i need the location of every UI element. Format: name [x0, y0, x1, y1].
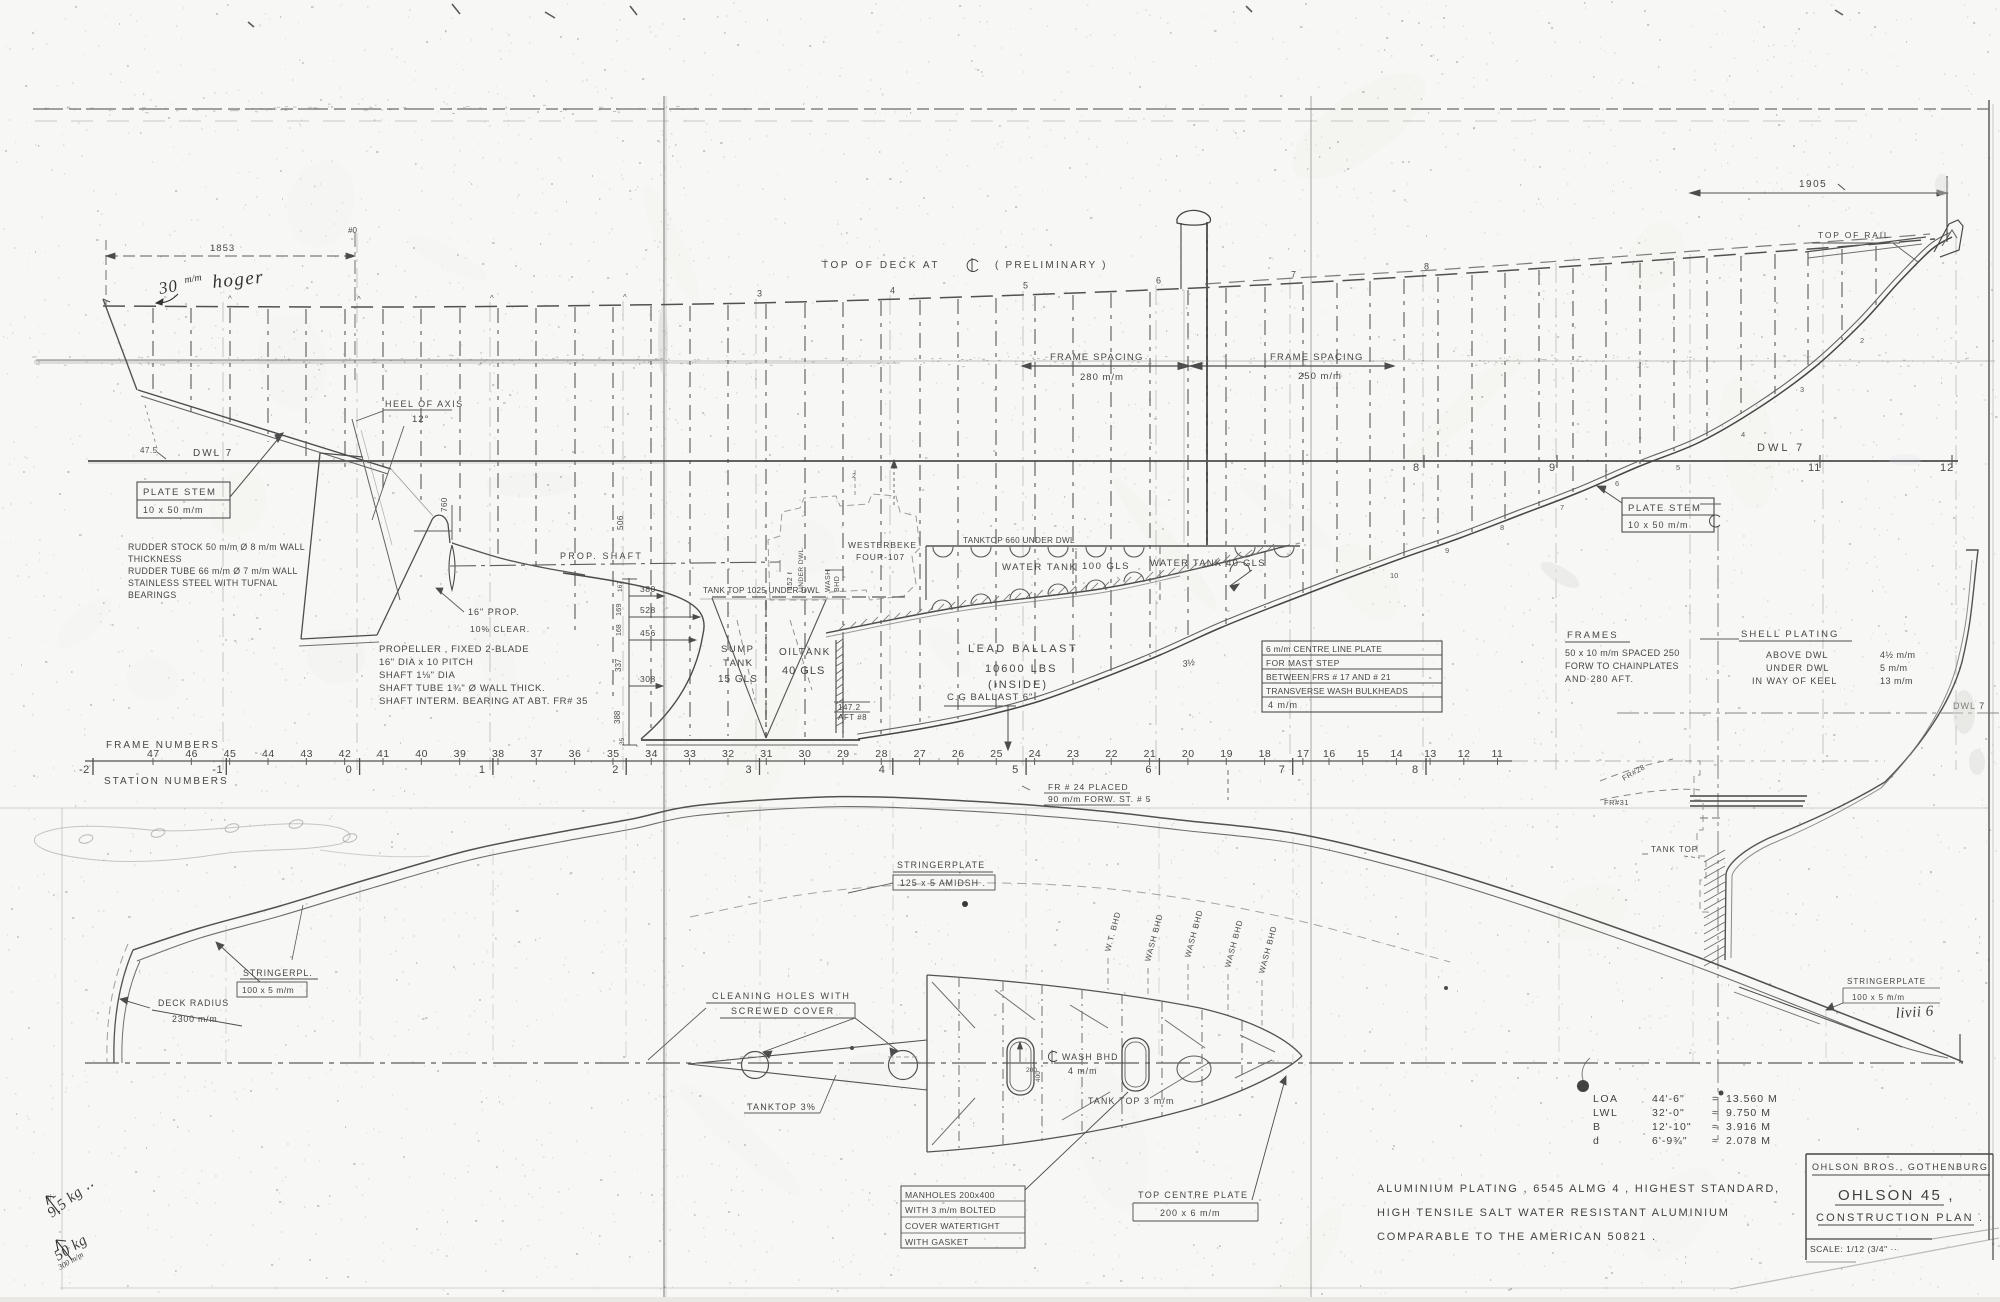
svg-text:100 GLS: 100 GLS [1082, 561, 1130, 572]
svg-text:10 x 50 m/m: 10 x 50 m/m [143, 505, 204, 515]
svg-text:BEARINGS: BEARINGS [128, 590, 177, 600]
svg-text:9: 9 [1549, 462, 1556, 474]
svg-text:RUDDER STOCK 50 m/m Ø 8 m/m WA: RUDDER STOCK 50 m/m Ø 8 m/m WALL [128, 542, 305, 552]
svg-text:200 x 6 m/m: 200 x 6 m/m [1160, 1208, 1221, 1218]
svg-text:2.078 M: 2.078 M [1726, 1135, 1771, 1147]
svg-text:10 x 50 m/m: 10 x 50 m/m [1628, 520, 1689, 530]
svg-text:TANKTOP 660 UNDER DWL: TANKTOP 660 UNDER DWL [963, 536, 1075, 545]
svg-text:6 m/m CENTRE LINE PLATE: 6 m/m CENTRE LINE PLATE [1266, 644, 1382, 654]
svg-text:DWL 7: DWL 7 [193, 448, 233, 459]
svg-text:TOP OF RAIL: TOP OF RAIL [1818, 230, 1890, 240]
svg-text:-1: -1 [212, 764, 223, 776]
svg-text:12'-10": 12'-10" [1652, 1121, 1692, 1133]
svg-text:≈: ≈ [1712, 1135, 1718, 1147]
svg-text:WESTERBEKE: WESTERBEKE [848, 540, 917, 550]
svg-text:456: 456 [640, 628, 656, 638]
svg-text:PLATE STEM: PLATE STEM [143, 487, 216, 498]
svg-text:STRINGERPLATE: STRINGERPLATE [897, 860, 985, 870]
svg-text:TANK TOP: TANK TOP [1651, 845, 1698, 854]
svg-text:STAINLESS STEEL WITH TUFNAL: STAINLESS STEEL WITH TUFNAL [128, 578, 278, 588]
svg-text:≈: ≈ [1712, 1121, 1718, 1133]
svg-text:6'-9¾": 6'-9¾" [1652, 1135, 1688, 1147]
svg-text:0: 0 [346, 764, 353, 776]
svg-text:2300 m/m: 2300 m/m [172, 1014, 218, 1024]
svg-text:380: 380 [640, 584, 656, 594]
svg-text:IN WAY OF KEEL: IN WAY OF KEEL [1752, 676, 1837, 686]
svg-text:1905: 1905 [1799, 179, 1827, 190]
svg-text:32'-0": 32'-0" [1652, 1107, 1685, 1119]
svg-text:16" DIA x 10 PITCH: 16" DIA x 10 PITCH [379, 657, 473, 668]
svg-text:CLEANING HOLES WITH: CLEANING HOLES WITH [712, 991, 851, 1001]
svg-text:PROP. SHAFT: PROP. SHAFT [560, 551, 643, 561]
svg-text:15 GLS: 15 GLS [718, 674, 758, 685]
svg-text:8: 8 [1412, 764, 1419, 776]
svg-text:250 m/m: 250 m/m [1298, 371, 1342, 382]
svg-text:9.750 M: 9.750 M [1726, 1107, 1771, 1119]
svg-text:#0: #0 [348, 226, 357, 235]
svg-text:5: 5 [1023, 281, 1028, 291]
svg-text:FRAME NUMBERS: FRAME NUMBERS [106, 740, 220, 751]
svg-text:BETWEEN FRS # 17 AND # 21: BETWEEN FRS # 17 AND # 21 [1266, 672, 1391, 682]
svg-text:167: 167 [617, 581, 624, 592]
svg-text:47.5: 47.5 [140, 446, 158, 455]
svg-text:BHD: BHD [834, 576, 841, 592]
svg-text:SCALE: 1/12 (3/4" ··: SCALE: 1/12 (3/4" ·· [1810, 1244, 1897, 1254]
svg-text:3.916 M: 3.916 M [1726, 1121, 1771, 1133]
svg-text:2: 2 [612, 764, 619, 776]
svg-text:RUDDER TUBE 66 m/m Ø 7 m/m WAL: RUDDER TUBE 66 m/m Ø 7 m/m WALL [128, 566, 298, 576]
svg-text:100 x 5 m/m: 100 x 5 m/m [1852, 993, 1905, 1002]
svg-text:^: ^ [623, 293, 627, 302]
svg-text:TRANSVERSE WASH BULKHEADS: TRANSVERSE WASH BULKHEADS [1266, 686, 1408, 696]
svg-text:^: ^ [228, 294, 232, 303]
svg-text:FOR MAST STEP: FOR MAST STEP [1266, 658, 1340, 668]
svg-text:400: 400 [1035, 1071, 1042, 1082]
svg-text:44'-6": 44'-6" [1652, 1093, 1685, 1105]
svg-text:5 m/m: 5 m/m [1880, 663, 1908, 673]
svg-text:B: B [1593, 1121, 1602, 1133]
svg-text:WITH GASKET: WITH GASKET [905, 1237, 969, 1247]
svg-text:MANHOLES 200x400: MANHOLES 200x400 [905, 1190, 995, 1200]
svg-text:308: 308 [640, 674, 656, 684]
svg-text:760: 760 [440, 497, 449, 512]
svg-text:9: 9 [1445, 546, 1449, 555]
svg-text:ABOVE DWL: ABOVE DWL [1766, 650, 1829, 660]
svg-text:=: = [1712, 1093, 1718, 1105]
svg-text:OHLSON BROS., GOTHENBURG: OHLSON BROS., GOTHENBURG [1812, 1162, 1988, 1172]
svg-text:PLATE STEM: PLATE STEM [1628, 503, 1701, 514]
svg-text:WASH: WASH [825, 569, 832, 592]
svg-text:506: 506 [616, 515, 625, 530]
svg-text:≈: ≈ [1712, 1107, 1718, 1119]
svg-text:8: 8 [1500, 523, 1504, 532]
svg-text:SHAFT 1⅛" DIA: SHAFT 1⅛" DIA [379, 670, 456, 681]
svg-text:1: 1 [479, 764, 486, 776]
svg-text:FORW TO CHAINPLATES: FORW TO CHAINPLATES [1565, 661, 1679, 671]
svg-text:ALUMINIUM PLATING , 6545 ALMG: ALUMINIUM PLATING , 6545 ALMG 4 , HIGHES… [1377, 1183, 1780, 1195]
svg-text:8: 8 [1424, 262, 1429, 272]
svg-text:4: 4 [890, 285, 895, 295]
svg-text:10600 LBS: 10600 LBS [985, 663, 1057, 675]
svg-text:AFT #8: AFT #8 [838, 713, 867, 722]
svg-text:SCREWED COVER: SCREWED COVER [731, 1006, 835, 1016]
svg-text:7: 7 [1291, 269, 1296, 279]
svg-text:AND 280 AFT.: AND 280 AFT. [1565, 674, 1634, 684]
svg-text:125 x 5 AMIDSH .: 125 x 5 AMIDSH . [900, 878, 986, 888]
svg-text:^: ^ [357, 295, 361, 304]
svg-text:( PRELIMINARY ): ( PRELIMINARY ) [995, 260, 1108, 271]
svg-text:LWL: LWL [1593, 1107, 1618, 1119]
svg-text:6: 6 [1145, 764, 1152, 776]
svg-text:4 m/m: 4 m/m [1268, 700, 1298, 710]
svg-text:12°: 12° [412, 414, 429, 425]
svg-text:7: 7 [1279, 764, 1286, 776]
svg-text:6: 6 [1615, 479, 1619, 488]
svg-text:livii 6: livii 6 [1895, 1003, 1934, 1022]
svg-text:TANK: TANK [723, 658, 754, 669]
svg-text:3: 3 [1800, 385, 1804, 394]
svg-text:147.2: 147.2 [838, 703, 861, 712]
svg-text:COVER WATERTIGHT: COVER WATERTIGHT [905, 1221, 1000, 1231]
svg-text:4½ m/m: 4½ m/m [1880, 650, 1916, 660]
svg-text:3: 3 [757, 289, 762, 299]
svg-text:TOP OF DECK AT: TOP OF DECK AT [822, 260, 940, 271]
svg-text:100 x 5 m/m: 100 x 5 m/m [242, 985, 294, 995]
svg-text:THICKNESS: THICKNESS [128, 554, 182, 564]
svg-text:OHLSON 45 ,: OHLSON 45 , [1838, 1187, 1955, 1204]
svg-text:d: d [1593, 1135, 1600, 1147]
svg-text:4: 4 [879, 764, 886, 776]
svg-text:2: 2 [852, 473, 856, 480]
svg-text:FOUR-107: FOUR-107 [856, 552, 905, 562]
svg-text:STATION NUMBERS: STATION NUMBERS [104, 776, 229, 787]
svg-text:5: 5 [1676, 463, 1680, 472]
svg-text:169: 169 [614, 603, 623, 616]
svg-text:WASH BHD: WASH BHD [1062, 1052, 1119, 1062]
svg-text:OILTANK: OILTANK [779, 647, 831, 658]
svg-text:TANKTOP 3%: TANKTOP 3% [747, 1102, 816, 1112]
svg-text:SUMP: SUMP [721, 644, 754, 655]
svg-text:30: 30 [156, 276, 179, 298]
svg-text:CONSTRUCTION PLAN .: CONSTRUCTION PLAN . [1816, 1212, 1984, 1224]
svg-text:7: 7 [1560, 503, 1564, 512]
svg-text:STRINGERPLATE: STRINGERPLATE [1847, 977, 1926, 986]
svg-text:WATER TANK: WATER TANK [1002, 562, 1077, 573]
svg-text:FRAMES: FRAMES [1567, 630, 1619, 641]
svg-text:(INSIDE): (INSIDE) [988, 679, 1048, 691]
svg-text:35: 35 [619, 737, 626, 745]
svg-text:HEEL OF AXIS: HEEL OF AXIS [385, 399, 464, 409]
svg-text:2: 2 [1860, 336, 1864, 345]
svg-text:FRAME SPACING: FRAME SPACING [1050, 352, 1144, 363]
svg-text:90 m/m FORW. ST. # 5: 90 m/m FORW. ST. # 5 [1048, 794, 1151, 804]
svg-text:COMPARABLE TO THE AMERICAN 508: COMPARABLE TO THE AMERICAN 50821 . [1377, 1231, 1657, 1243]
svg-text:FR # 24 PLACED: FR # 24 PLACED [1048, 782, 1129, 792]
svg-text:152 ℓ: 152 ℓ [787, 571, 794, 590]
svg-text:^: ^ [490, 294, 494, 303]
svg-text:6: 6 [1156, 275, 1161, 285]
svg-text:SHAFT TUBE 1¾" Ø WALL THICK.: SHAFT TUBE 1¾" Ø WALL THICK. [379, 683, 545, 694]
svg-text:DECK RADIUS: DECK RADIUS [158, 998, 229, 1008]
svg-text:FRAME SPACING: FRAME SPACING [1270, 352, 1364, 363]
svg-text:388: 388 [613, 710, 622, 724]
svg-text:168: 168 [616, 624, 623, 636]
svg-text:337: 337 [614, 658, 623, 672]
svg-text:13.560 M: 13.560 M [1726, 1093, 1778, 1105]
svg-text:13 m/m: 13 m/m [1880, 676, 1913, 686]
svg-text:SHELL PLATING: SHELL PLATING [1741, 629, 1839, 640]
svg-text:UNDER DWL: UNDER DWL [1766, 663, 1830, 673]
svg-text:-2: -2 [79, 764, 90, 776]
svg-text:5: 5 [1012, 764, 1019, 776]
svg-text:528: 528 [640, 605, 656, 615]
svg-text:280 m/m: 280 m/m [1080, 372, 1124, 383]
svg-text:SHAFT INTERM. BEARING AT ABT.: SHAFT INTERM. BEARING AT ABT. FR# 35 [379, 696, 588, 707]
svg-text:C.G BALLAST 6": C.G BALLAST 6" [947, 692, 1033, 703]
svg-text:FR#31: FR#31 [1604, 798, 1629, 807]
svg-text:LOA: LOA [1593, 1093, 1619, 1105]
svg-text:50 x 10 m/m SPACED 250: 50 x 10 m/m SPACED 250 [1565, 648, 1680, 658]
svg-text:LEAD BALLAST: LEAD BALLAST [968, 643, 1078, 655]
